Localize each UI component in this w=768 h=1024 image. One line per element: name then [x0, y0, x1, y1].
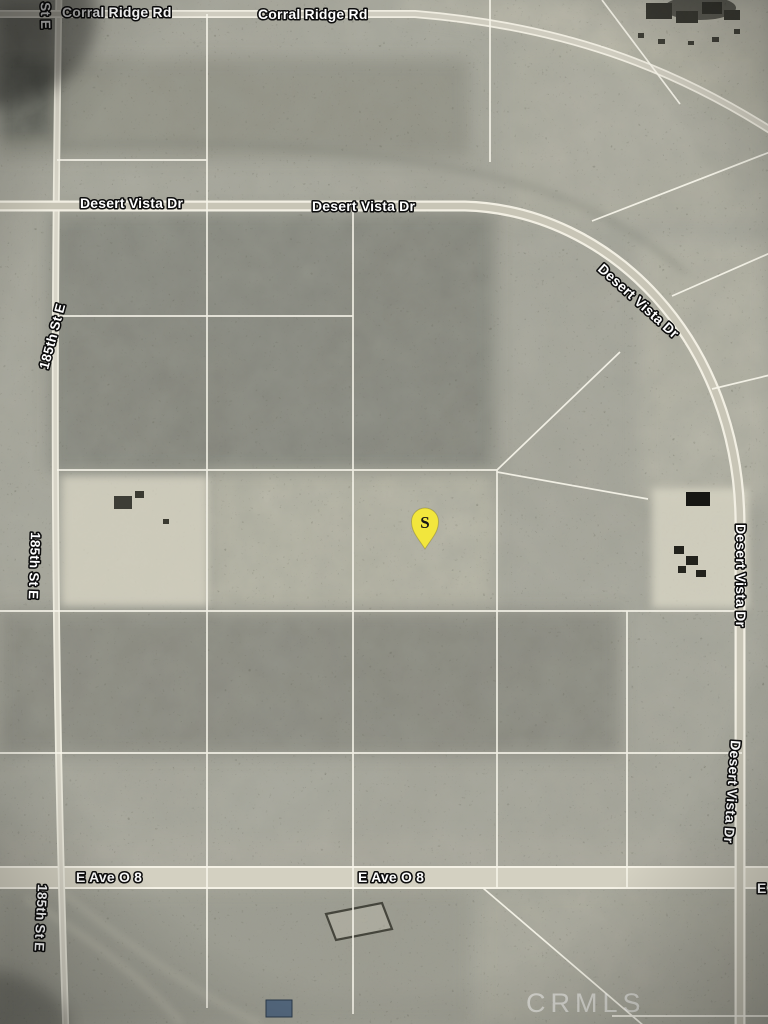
map-photo: Corral Ridge Rd Corral Ridge Rd Desert V… — [0, 0, 768, 1024]
map-canvas[interactable]: Corral Ridge Rd Corral Ridge Rd Desert V… — [0, 0, 768, 1024]
photo-vignette — [0, 0, 768, 1024]
